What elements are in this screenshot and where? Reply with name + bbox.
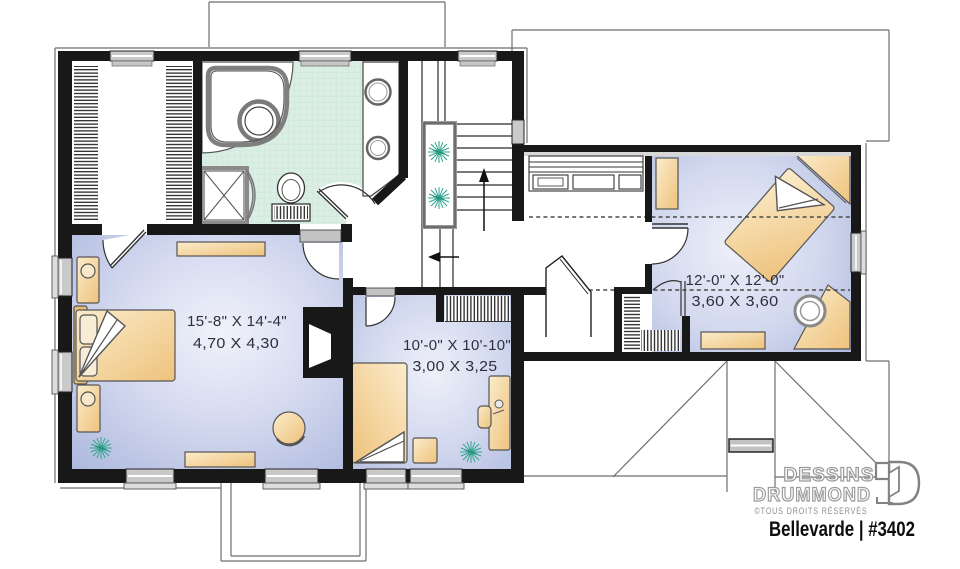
svg-text:12'-0" X 12'-0": 12'-0" X 12'-0" xyxy=(686,273,785,289)
svg-text:15'-8" X 14'-4": 15'-8" X 14'-4" xyxy=(187,314,287,330)
svg-text:©TOUS DROITS RÉSERVÉS: ©TOUS DROITS RÉSERVÉS xyxy=(755,506,868,517)
svg-text:3,00 X 3,25: 3,00 X 3,25 xyxy=(413,359,498,375)
svg-text:DESSINS: DESSINS xyxy=(784,465,875,486)
svg-text:4,70 X 4,30: 4,70 X 4,30 xyxy=(193,336,279,352)
svg-text:DRUMMOND: DRUMMOND xyxy=(753,485,871,506)
svg-text:10'-0" X 10'-10": 10'-0" X 10'-10" xyxy=(403,338,511,354)
svg-text:3,60 X 3,60: 3,60 X 3,60 xyxy=(692,294,779,310)
svg-text:Bellevarde | #3402: Bellevarde | #3402 xyxy=(769,518,915,541)
